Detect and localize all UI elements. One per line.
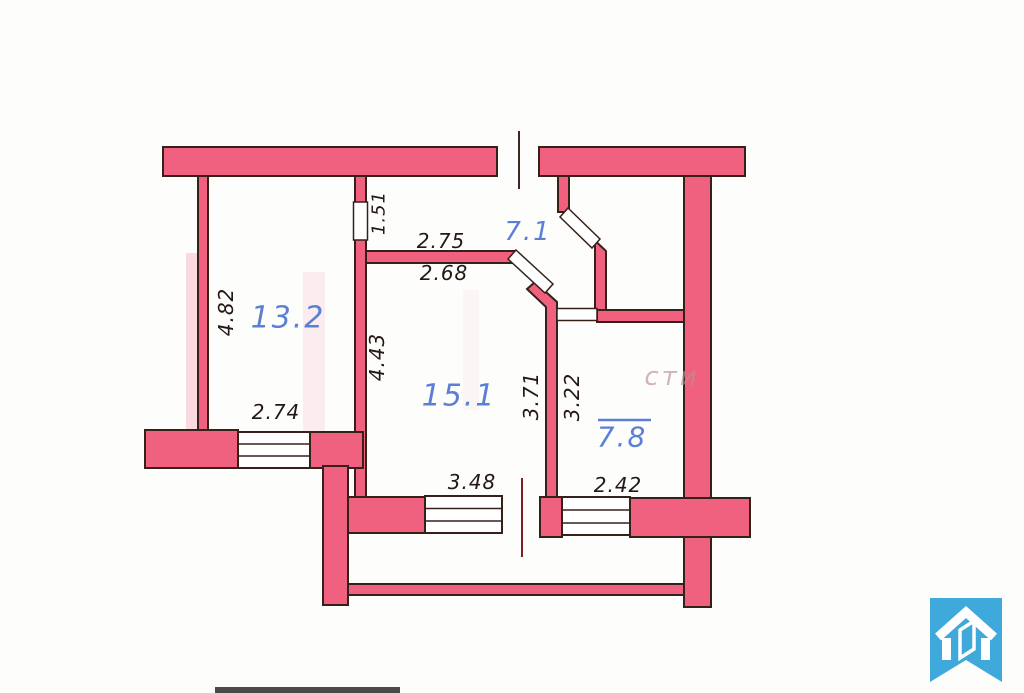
dim-4-43: 4.43 bbox=[365, 333, 389, 382]
dim-2-42: 2.42 bbox=[594, 473, 643, 497]
dim-3-22: 3.22 bbox=[560, 373, 584, 422]
room-13-2-label: 13.2 bbox=[251, 301, 326, 336]
wall-stub-top bbox=[558, 176, 569, 212]
floorplan-page: 13.2 7.1 15.1 7.8 4.82 2.74 1.51 2.75 2.… bbox=[0, 0, 1024, 693]
wall-lower-bar bbox=[323, 466, 348, 605]
door-opening-diagonal-closet bbox=[560, 208, 600, 248]
house-pennant-logo bbox=[930, 598, 1002, 682]
wall-left-13-2 bbox=[198, 176, 208, 434]
floorplan-drawing bbox=[0, 0, 1024, 693]
window-2-42 bbox=[562, 497, 630, 535]
wall-13-2-bottom-left bbox=[145, 430, 238, 468]
dim-3-48: 3.48 bbox=[448, 470, 497, 494]
window-13-2 bbox=[238, 432, 310, 468]
dim-4-82: 4.82 bbox=[214, 288, 238, 337]
door-opening-1-51 bbox=[354, 202, 368, 240]
house-left-wall-icon bbox=[942, 638, 951, 660]
window-3-48 bbox=[425, 496, 502, 533]
watermark-text-fragment: сти bbox=[644, 362, 699, 392]
dim-2-68: 2.68 bbox=[420, 261, 469, 285]
wall-bottom-thin bbox=[348, 584, 684, 595]
dim-3-71: 3.71 bbox=[519, 372, 543, 421]
room-15-1-label: 15.1 bbox=[422, 379, 497, 414]
wall-7-8-top bbox=[597, 310, 687, 322]
dim-2-74: 2.74 bbox=[252, 400, 301, 424]
wall-13-2-bottom-right bbox=[310, 432, 363, 468]
wall-pier-bottom bbox=[540, 497, 562, 537]
room-7-1-label: 7.1 bbox=[504, 217, 551, 247]
door-opening-7-8 bbox=[557, 309, 597, 321]
house-right-wall-icon bbox=[981, 638, 990, 660]
room-7-8-label: 7.8 bbox=[597, 421, 648, 454]
wall-top-right-segment bbox=[539, 147, 745, 176]
dim-2-75: 2.75 bbox=[417, 229, 466, 253]
bottom-edge-bar bbox=[215, 687, 400, 693]
wall-7-8-bottom bbox=[630, 498, 750, 537]
wall-15-1-bottom bbox=[348, 497, 425, 533]
wall-top-left-segment bbox=[163, 147, 497, 176]
dim-1-51: 1.51 bbox=[369, 191, 390, 235]
